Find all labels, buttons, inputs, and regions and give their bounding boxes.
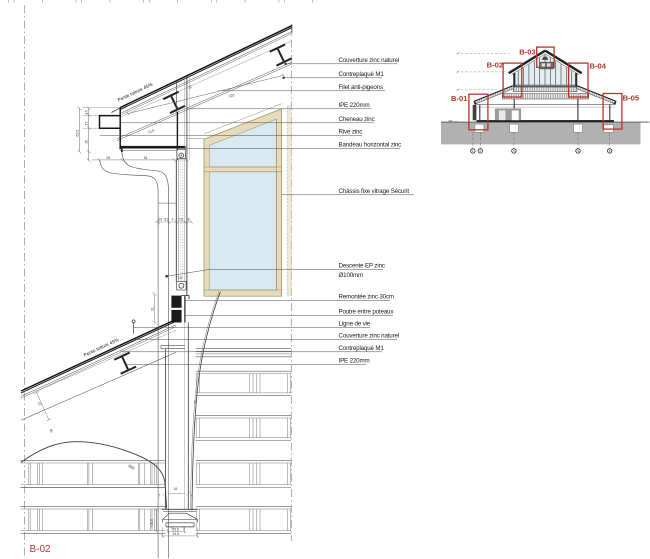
svg-text:Châssis fixe vitrage Sécurit: Châssis fixe vitrage Sécurit (339, 188, 410, 195)
svg-text:Descente EP zinc: Descente EP zinc (339, 263, 385, 270)
svg-text:Couverture zinc naturel: Couverture zinc naturel (339, 57, 400, 64)
svg-text:Ø100mm: Ø100mm (339, 272, 364, 279)
svg-text:Filet anti-pigeons: Filet anti-pigeons (339, 84, 383, 91)
svg-text:8: 8 (188, 218, 190, 222)
svg-text:Contreplaqué M1: Contreplaqué M1 (339, 345, 385, 352)
svg-text:7: 7 (159, 494, 161, 498)
svg-text:15: 15 (85, 121, 89, 125)
svg-text:36: 36 (193, 400, 197, 404)
svg-text:B-05: B-05 (623, 93, 640, 102)
svg-text:9: 9 (172, 218, 174, 222)
svg-text:20: 20 (85, 140, 89, 144)
svg-text:Cheneau zinc: Cheneau zinc (339, 116, 375, 123)
svg-text:B-04: B-04 (590, 62, 607, 71)
svg-text:7.8: 7.8 (178, 218, 183, 222)
svg-text:43.5: 43.5 (172, 532, 179, 536)
svg-text:Remontée zinc 30cm: Remontée zinc 30cm (339, 294, 394, 301)
svg-text:8.5: 8.5 (164, 218, 169, 222)
svg-text:IPE 220mm: IPE 220mm (339, 102, 370, 109)
svg-text:Poutre entre poteaux: Poutre entre poteaux (339, 309, 395, 316)
svg-text:16: 16 (174, 487, 178, 491)
svg-text:B-02: B-02 (30, 544, 52, 555)
svg-text:Ligne de vie: Ligne de vie (339, 321, 371, 328)
svg-text:63.5: 63.5 (75, 130, 79, 137)
svg-text:61: 61 (144, 156, 148, 160)
svg-text:IPE 220mm: IPE 220mm (339, 358, 370, 365)
svg-text:25: 25 (106, 156, 110, 160)
svg-text:Rive zinc: Rive zinc (339, 129, 363, 136)
svg-text:B-03: B-03 (519, 47, 535, 56)
svg-text:10: 10 (159, 218, 163, 222)
svg-text:31: 31 (150, 307, 154, 311)
svg-text:Bandeau horizontal zinc: Bandeau horizontal zinc (339, 142, 402, 149)
svg-text:Contreplaqué M1: Contreplaqué M1 (339, 71, 385, 78)
svg-text:4.5: 4.5 (85, 110, 89, 115)
svg-text:B-01: B-01 (451, 94, 468, 103)
svg-text:Couverture zinc naturel: Couverture zinc naturel (339, 333, 400, 340)
svg-text:26.5: 26.5 (172, 528, 179, 532)
svg-text:7.8: 7.8 (177, 276, 182, 280)
svg-text:B-02: B-02 (487, 60, 503, 69)
